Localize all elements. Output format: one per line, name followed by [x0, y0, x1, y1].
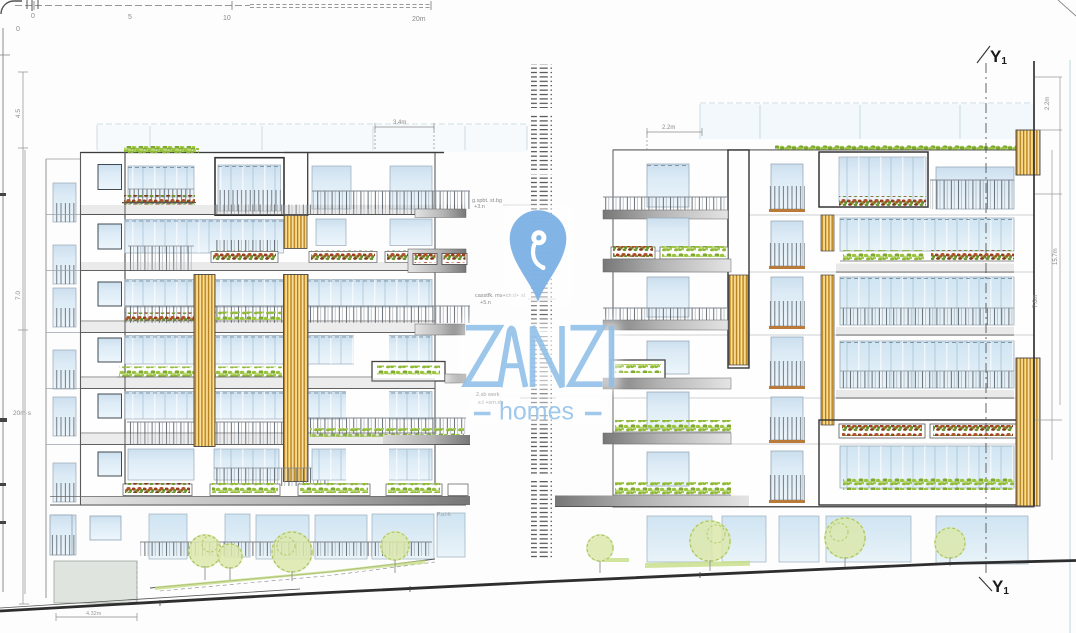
- svg-text:+5.n: +5.n: [480, 300, 491, 306]
- svg-text:4.32m: 4.32m: [86, 611, 102, 617]
- svg-text:3.4m: 3.4m: [393, 120, 406, 126]
- svg-text:7.6m: 7.6m: [1033, 295, 1039, 308]
- svg-text:2.sb werk: 2.sb werk: [476, 392, 500, 398]
- svg-text:2.2m: 2.2m: [662, 125, 675, 131]
- svg-text:0: 0: [16, 26, 20, 33]
- svg-text:5: 5: [128, 14, 132, 21]
- svg-text:15.7m: 15.7m: [1053, 248, 1059, 265]
- svg-text:+3.n: +3.n: [474, 204, 485, 210]
- svg-text:P.a.t-k: P.a.t-k: [437, 512, 451, 518]
- svg-text:0: 0: [31, 13, 35, 20]
- svg-text:7.0: 7.0: [15, 291, 22, 300]
- svg-text:2.2m: 2.2m: [1045, 97, 1051, 110]
- svg-text:10: 10: [223, 15, 231, 22]
- svg-text:4.5: 4.5: [15, 109, 22, 118]
- svg-text:20m: 20m: [412, 16, 426, 23]
- svg-text:20m·s: 20m·s: [13, 410, 32, 417]
- svg-text:homes: homes: [499, 398, 574, 426]
